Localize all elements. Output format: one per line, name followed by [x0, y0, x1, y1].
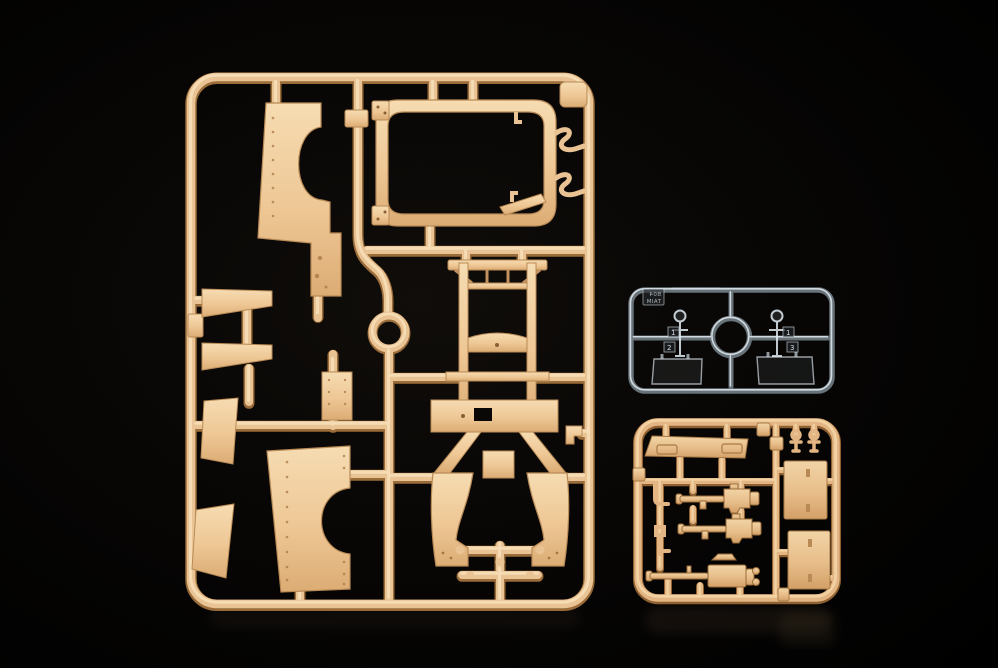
riveted-plate — [322, 372, 352, 420]
side-panel-upper — [201, 398, 238, 464]
door-panel-lower — [788, 531, 830, 589]
sprues-photo: B04 TAIM 1 2 1 3 — [0, 0, 998, 668]
floor-panel — [431, 400, 558, 432]
emboss-marks — [672, 288, 720, 290]
windscreen-top-panel — [645, 436, 748, 458]
svg-text:2: 2 — [667, 344, 671, 352]
side-panel-lower — [192, 504, 234, 578]
part-number-tab-3R: 3 — [787, 342, 798, 352]
door-panel-upper — [784, 461, 827, 519]
part-number-tab-1R: 1 — [783, 327, 794, 337]
svg-text:1: 1 — [671, 329, 675, 337]
gate-block-left — [188, 314, 203, 337]
photo-stage: B04 TAIM 1 2 1 3 — [0, 0, 998, 668]
part-number-tab-2L: 2 — [664, 342, 675, 352]
glazing-panel-right — [757, 352, 814, 384]
gate-block — [345, 110, 368, 127]
svg-text:1: 1 — [786, 329, 790, 337]
tag-line-1: B04 — [649, 292, 661, 298]
corner-bracket — [560, 82, 587, 107]
part-number-tab-1L: 1 — [668, 327, 679, 337]
svg-text:3: 3 — [790, 344, 794, 352]
glazing-panel-left — [652, 354, 702, 384]
tag-line-2: TAIM — [646, 299, 662, 305]
